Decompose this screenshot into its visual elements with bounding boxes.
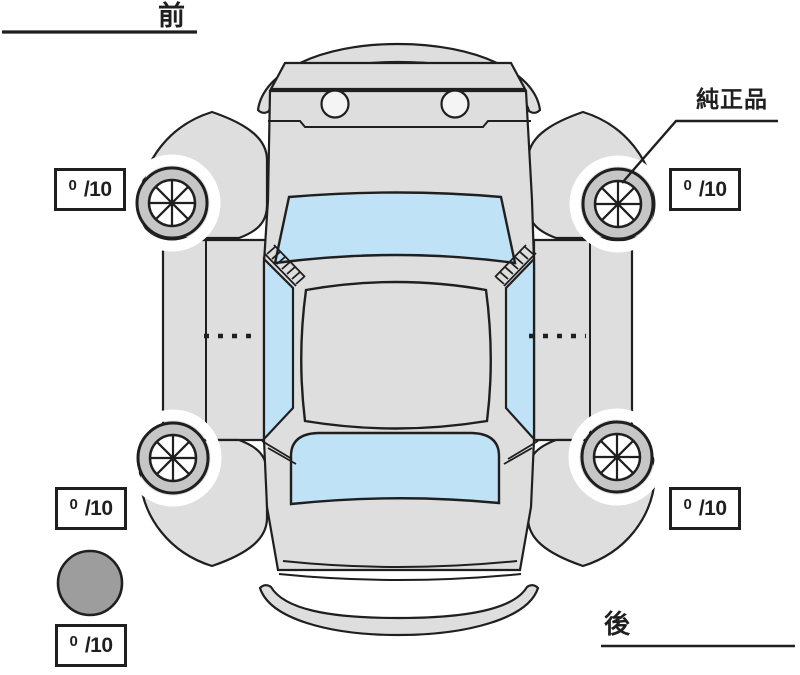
tread-value: 0 (683, 496, 691, 513)
tread-box-front-left: 0 /10 (54, 168, 126, 211)
tread-box-spare: 0 /10 (55, 624, 127, 667)
rear-bumper (260, 585, 538, 635)
front-label: 前 (158, 3, 185, 30)
tread-denominator: /10 (699, 178, 727, 202)
right-side-window (506, 259, 534, 439)
front-panel-strip (271, 63, 525, 89)
genuine-part-label: 純正品 (696, 88, 768, 111)
tread-denominator: /10 (699, 497, 727, 521)
tread-value: 0 (69, 496, 77, 513)
wheel-rear-left (130, 415, 216, 501)
tread-box-front-right: 0 /10 (669, 168, 741, 211)
wheel-front-right (575, 161, 661, 247)
trunk-edge-line-2 (279, 574, 521, 580)
tread-denominator: /10 (85, 497, 113, 521)
windshield (275, 193, 515, 264)
car-top-view-drawing (0, 0, 800, 675)
rear-label: 後 (604, 611, 630, 637)
tread-value: 0 (68, 177, 76, 194)
tread-denominator: /10 (84, 178, 112, 202)
tread-value: 0 (69, 633, 77, 650)
tread-value: 0 (683, 177, 691, 194)
hood-circle-left (322, 91, 349, 118)
rear-window (291, 433, 499, 504)
left-side-window (264, 259, 293, 439)
spare-tire-icon (58, 551, 122, 615)
vehicle-inspection-diagram: 前 純正品 後 0 /10 0 /10 0 /10 0 /10 0 /10 (0, 0, 800, 675)
hood-circle-right (442, 91, 469, 118)
wheel-rear-right (574, 414, 660, 500)
wheel-front-left (129, 160, 215, 246)
tread-box-rear-right: 0 /10 (669, 487, 741, 530)
roof-panel (301, 282, 491, 429)
tread-box-rear-left: 0 /10 (55, 487, 127, 530)
tread-denominator: /10 (85, 634, 113, 658)
